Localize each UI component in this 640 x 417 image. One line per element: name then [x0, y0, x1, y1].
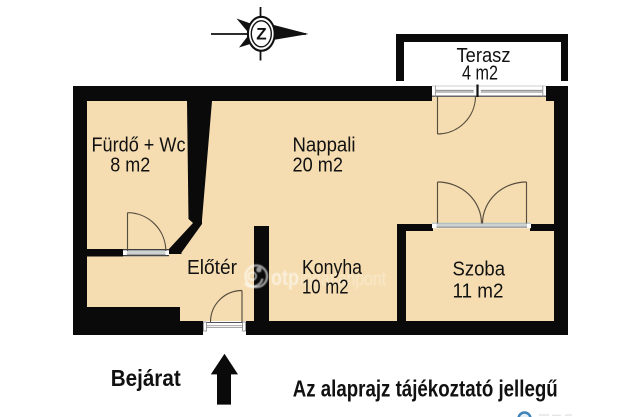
svg-text:Előtér: Előtér [187, 257, 237, 279]
svg-text:otp: otp [271, 265, 299, 290]
svg-text:4 m2: 4 m2 [462, 63, 498, 85]
svg-text:Z: Z [256, 25, 266, 44]
svg-text:11 m2: 11 m2 [453, 280, 504, 302]
svg-text:Szoba: Szoba [453, 258, 506, 280]
svg-text:Bejárat: Bejárat [111, 365, 181, 391]
svg-text:20 m2: 20 m2 [293, 154, 344, 176]
svg-text:10 m2: 10 m2 [302, 276, 349, 298]
svg-text:Az alaprajz tájékoztató jelleg: Az alaprajz tájékoztató jellegű [293, 375, 558, 401]
svg-text:Fürdő + Wc: Fürdő + Wc [92, 135, 186, 157]
svg-text:Nappali: Nappali [293, 135, 356, 157]
svg-text:8 m2: 8 m2 [110, 154, 150, 176]
